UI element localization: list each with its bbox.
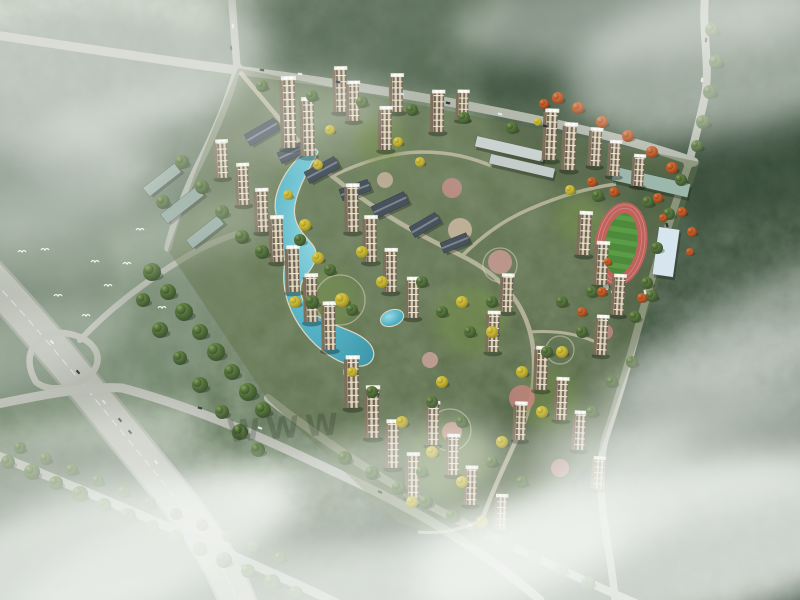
paved-plaza <box>422 352 438 368</box>
rendering-scene: WWW <box>0 0 800 600</box>
aerial-rendering-image: WWW <box>0 0 800 600</box>
paved-plaza <box>377 172 393 188</box>
paved-plaza <box>488 250 512 274</box>
paved-plaza <box>442 178 462 198</box>
